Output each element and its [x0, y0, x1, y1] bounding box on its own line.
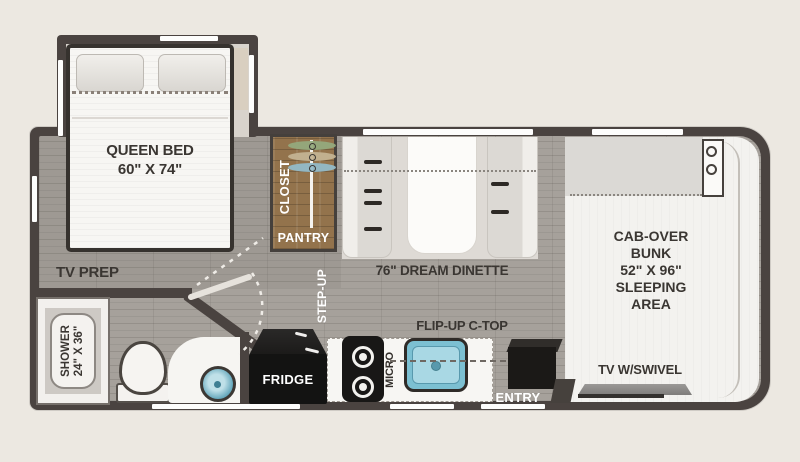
dinette-table	[407, 137, 477, 254]
toilet-icon	[119, 341, 167, 395]
pantry-label: PANTRY	[270, 231, 337, 245]
seat-latch-icon	[491, 182, 509, 186]
seat-latch-icon	[364, 160, 382, 164]
hanger-hook-icon	[309, 154, 316, 161]
hanger-hook-icon	[309, 143, 316, 150]
window-strip	[363, 129, 533, 135]
window-strip	[592, 129, 683, 135]
step-up-label: STEP-UP	[315, 261, 329, 331]
micro-label: MICRO	[383, 340, 397, 400]
sink-drain-icon	[214, 381, 221, 388]
nightstand	[234, 48, 248, 110]
closet-label: CLOSET	[277, 152, 291, 222]
dinette-bench-left	[342, 137, 392, 258]
burner-icon	[359, 383, 367, 391]
fridge-label: FRIDGE	[249, 372, 327, 387]
pillow-icon	[158, 54, 226, 92]
flip-up-ctop-label: FLIP-UP C-TOP	[404, 318, 520, 333]
window-strip	[58, 60, 63, 136]
seat-latch-icon	[364, 227, 382, 231]
pillow-icon	[76, 54, 144, 92]
window-strip	[390, 404, 454, 409]
window-strip	[249, 55, 254, 113]
tv-mount	[578, 394, 664, 398]
cab-over-bunk-label: CAB-OVER BUNK 52" X 96" SLEEPING AREA	[565, 228, 737, 313]
kitchen-wall-stub	[240, 332, 249, 404]
dinette-bench-right	[487, 137, 538, 258]
entry-label: ENTRY	[488, 390, 548, 405]
window-strip	[152, 404, 300, 409]
seat-latch-icon	[364, 189, 382, 193]
window-strip	[160, 36, 218, 41]
entry-steps	[508, 347, 556, 389]
bed-label: QUEEN BED 60" X 74"	[66, 141, 234, 179]
seat-latch-icon	[364, 201, 382, 205]
rv-floorplan: CLOSET PANTRY 76" DREAM DINETTE QUEEN BE…	[0, 0, 800, 462]
dinette-label: 76" DREAM DINETTE	[352, 263, 532, 278]
tv-prep-label: TV PREP	[56, 264, 146, 281]
sink-drain-icon	[431, 361, 441, 371]
bed-fold-line	[72, 117, 228, 119]
bed-dotted-line	[72, 91, 228, 94]
window-strip	[32, 176, 37, 222]
hanger-hook-icon	[309, 165, 316, 172]
circle-icon	[706, 164, 717, 175]
shower-label: SHOWER 24" X 36"	[59, 311, 87, 391]
burner-icon	[359, 353, 367, 361]
dinette-dotted-line	[344, 170, 536, 172]
tv-swivel-label: TV W/SWIVEL	[575, 362, 705, 377]
circle-icon	[706, 146, 717, 157]
seat-latch-icon	[491, 210, 509, 214]
